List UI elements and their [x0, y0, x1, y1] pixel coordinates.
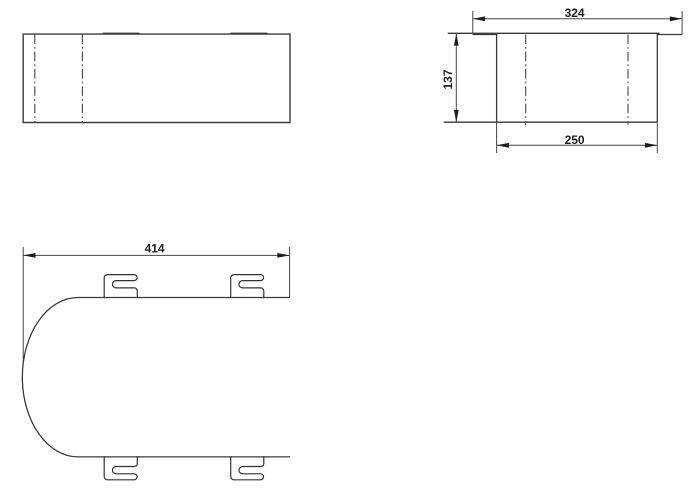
svg-text:137: 137	[441, 69, 455, 89]
svg-text:250: 250	[565, 133, 585, 147]
svg-text:324: 324	[565, 6, 585, 20]
svg-text:414: 414	[145, 242, 165, 256]
